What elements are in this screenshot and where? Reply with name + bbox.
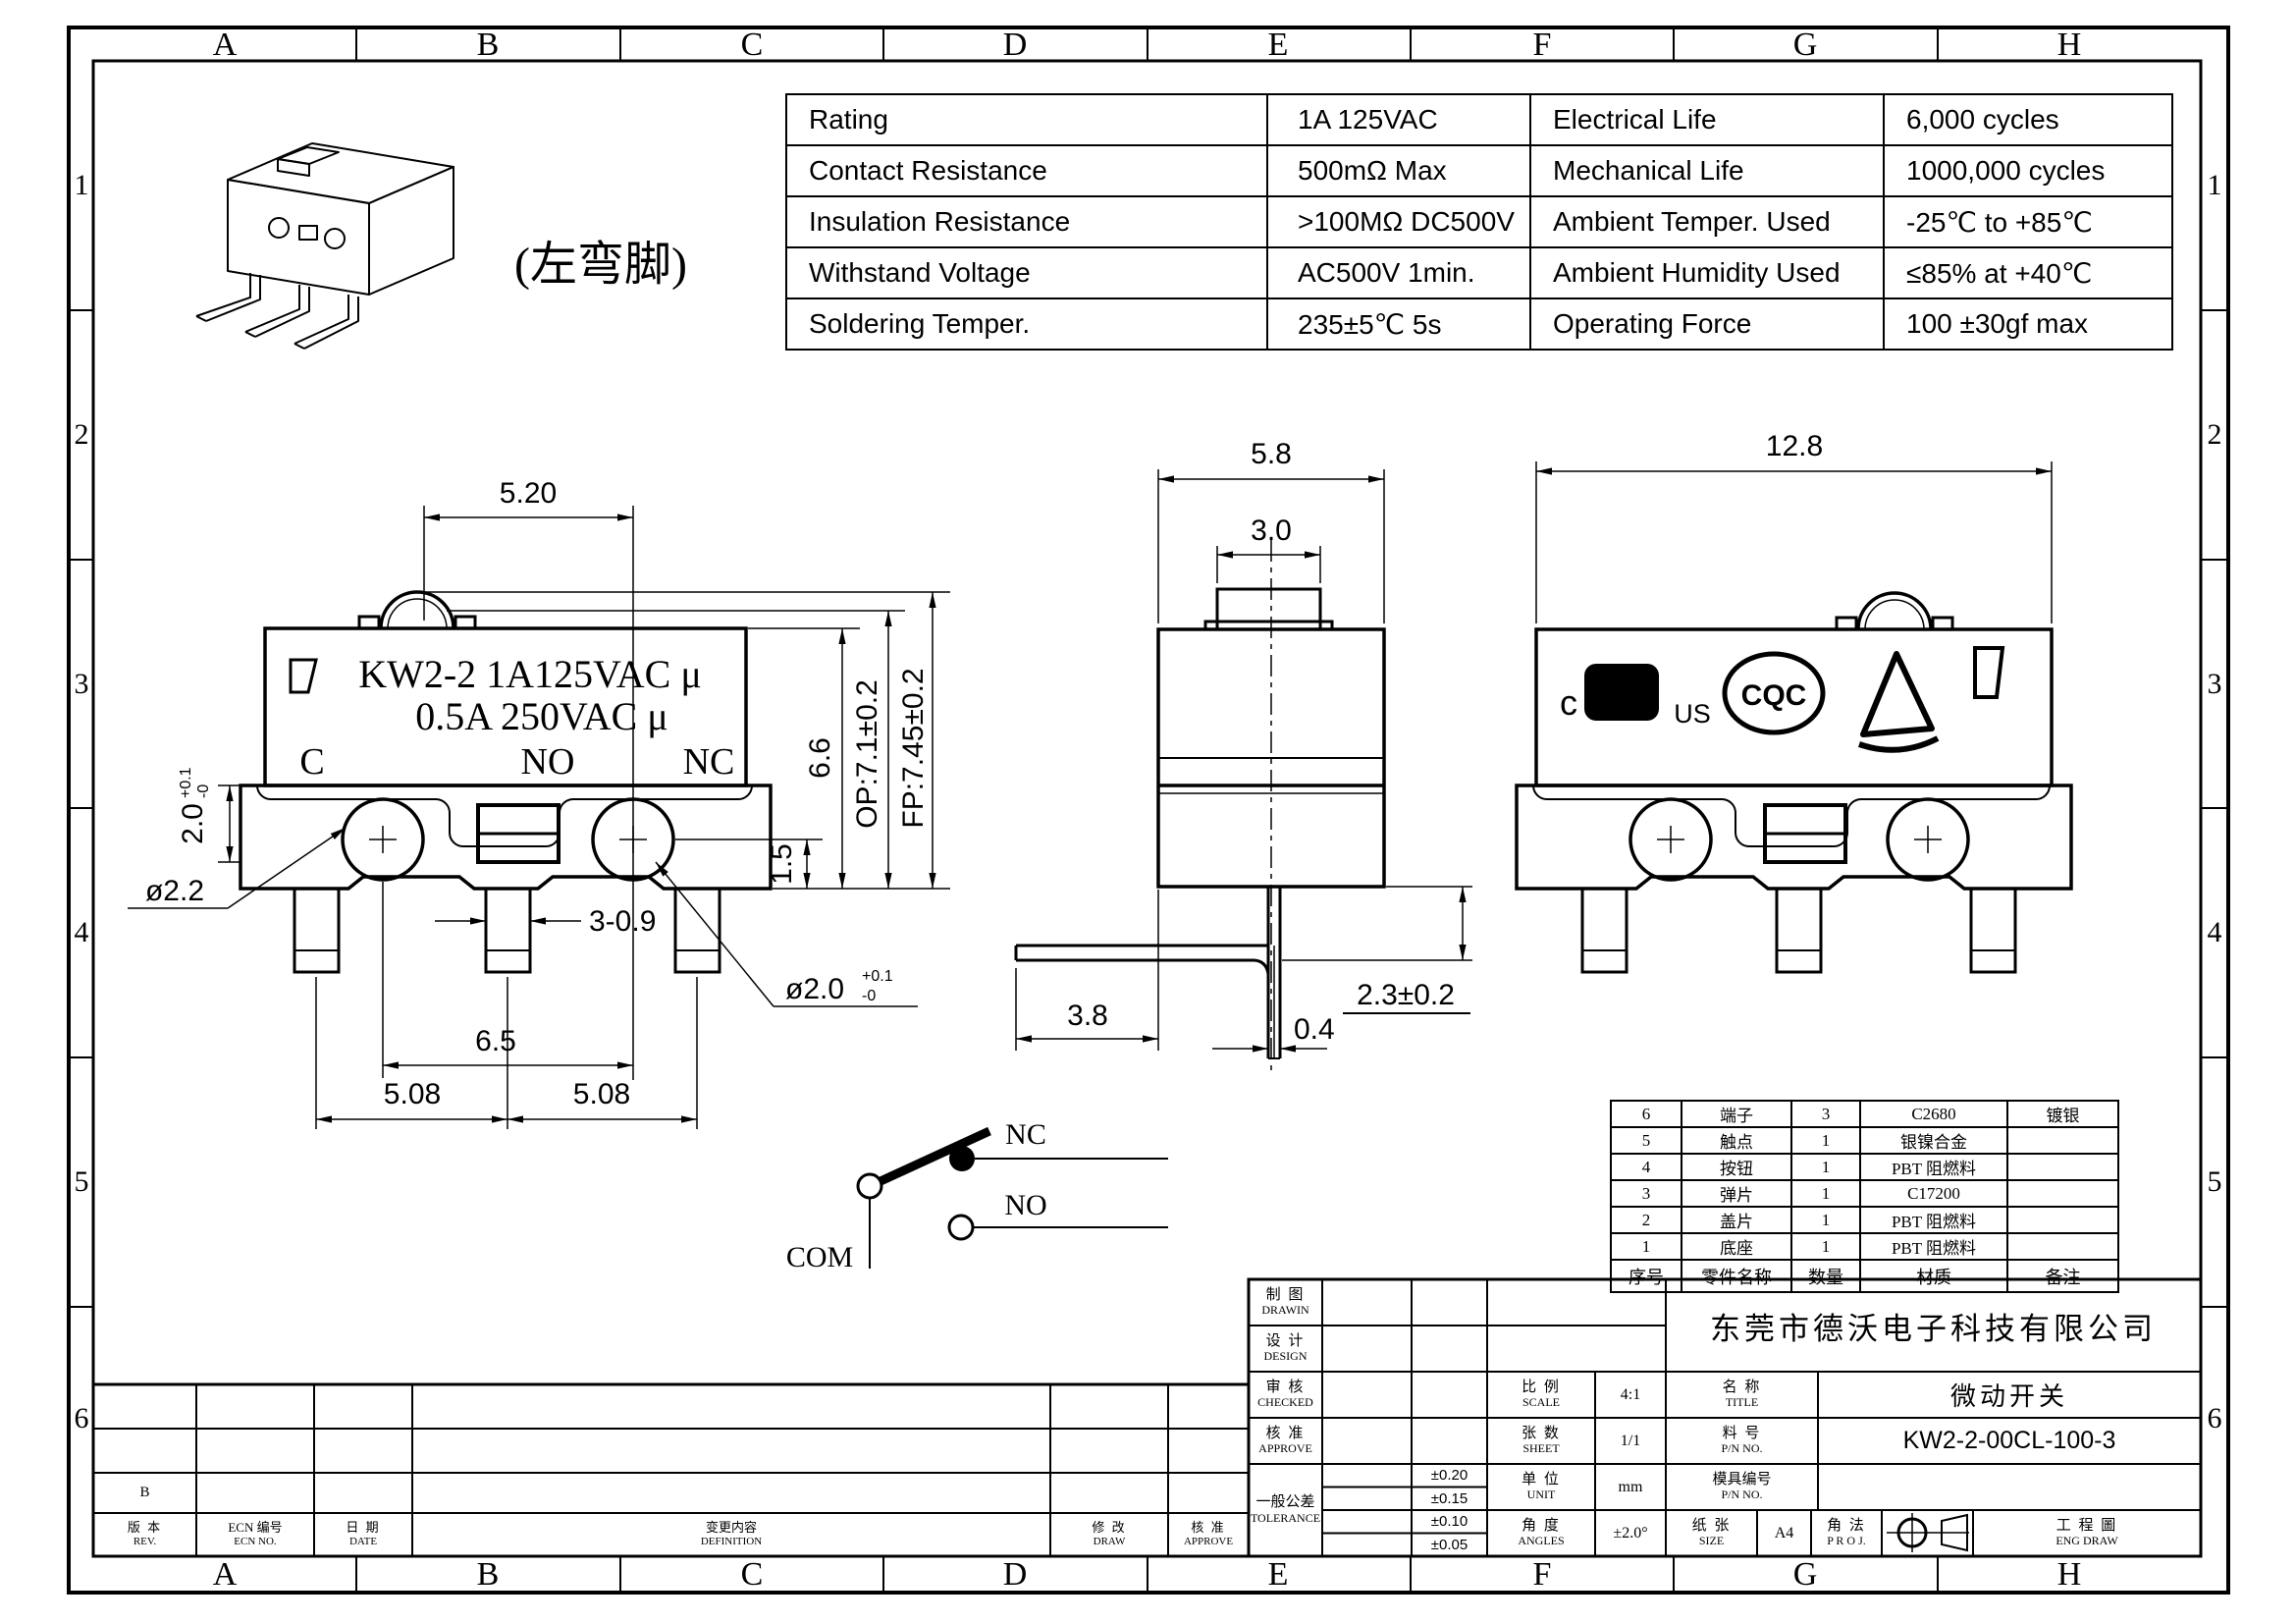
angles-value: ±2.0°	[1595, 1510, 1666, 1556]
spec-label: Insulation Resistance	[786, 196, 1267, 247]
titleblock-checked-label: 审 核CHECKED	[1249, 1372, 1322, 1418]
bom-row: 4 按钮 1 PBT 阻燃料	[1611, 1154, 2118, 1180]
revision-header-ecn: ECN 编号ECN NO.	[196, 1513, 314, 1556]
cert-c-label: c	[1560, 682, 1577, 723]
title-value: 微动开关	[1818, 1372, 2201, 1418]
bom-no: 1	[1611, 1233, 1682, 1260]
bom-note	[2007, 1233, 2118, 1260]
dim-dia2.0-tol-upper: +0.1	[862, 968, 893, 985]
bom-note: 镀银	[2007, 1101, 2118, 1127]
titleblock-tolerance-label: 一般公差TOLERANCE	[1249, 1464, 1322, 1556]
spec-label: Ambient Temper. Used	[1530, 196, 1884, 247]
bom-part-name: 端子	[1682, 1101, 1791, 1127]
bom-note	[2007, 1207, 2118, 1233]
isometric-view	[196, 143, 454, 349]
bom-no: 3	[1611, 1180, 1682, 1207]
circuit-no-label: NO	[1004, 1189, 1046, 1221]
cqc-mark-text: CQC	[1741, 679, 1807, 712]
side-view-dimensions: 3.0 5.8 3.8 0.4 2.3±0.2	[1016, 438, 1472, 1051]
dim-12.8: 12.8	[1766, 430, 1823, 462]
dim-5.8: 5.8	[1251, 438, 1292, 470]
bom-row: 2 盖片 1 PBT 阻燃料	[1611, 1207, 2118, 1233]
cert-us-label: US	[1674, 699, 1711, 729]
bom-table: 6 端子 3 C2680 镀银 5 触点 1 银镍合金 4 按钮 1 PBT 阻…	[1610, 1100, 2119, 1293]
spec-label: Mechanical Life	[1530, 145, 1884, 196]
spec-label: Contact Resistance	[786, 145, 1267, 196]
circuit-nc-label: NC	[1005, 1118, 1046, 1151]
bom-material: 银镍合金	[1860, 1127, 2007, 1154]
bom-qty: 1	[1791, 1127, 1860, 1154]
eng-draw-label: 工 程 圖ENG DRAW	[1973, 1510, 2201, 1556]
mold-number-value	[1818, 1464, 2201, 1510]
revision-header-date: 日 期DATE	[314, 1513, 412, 1556]
titleblock-drawing-label: 制 图DRAWIN	[1249, 1279, 1322, 1325]
bom-material: PBT 阻燃料	[1860, 1154, 2007, 1180]
spec-row: Insulation Resistance >100MΩ DC500V Ambi…	[786, 196, 2172, 247]
tolerance-value: ±0.10	[1412, 1510, 1487, 1533]
spec-value: >100MΩ DC500V	[1267, 196, 1530, 247]
projection-symbol-icon	[1887, 1513, 1969, 1552]
bom-part-name: 底座	[1682, 1233, 1791, 1260]
part-number-label: 料 号P/N NO.	[1666, 1418, 1818, 1464]
bom-row: 6 端子 3 C2680 镀银	[1611, 1101, 2118, 1127]
right-view: c UL US CQC	[1517, 593, 2071, 972]
terminal-label-c: C	[299, 741, 324, 783]
title-label: 名 称TITLE	[1666, 1372, 1818, 1418]
spec-value: 100 ±30gf max	[1884, 298, 2172, 350]
spec-value: 235±5℃ 5s	[1267, 298, 1530, 350]
scale-label: 比 例SCALE	[1487, 1372, 1595, 1418]
dim-2.0-tol-lower: -0	[195, 784, 212, 798]
spec-value: 6,000 cycles	[1884, 94, 2172, 145]
bom-qty: 1	[1791, 1233, 1860, 1260]
dim-fp: FP:7.45±0.2	[897, 668, 930, 828]
titleblock-approve-label: 核 准APPROVE	[1249, 1418, 1322, 1464]
dim-1.5: 1.5	[766, 843, 798, 885]
front-view: KW2-2 1A125VAC μ 0.5A 250VAC μ C NO NC	[240, 592, 771, 972]
dim-5.08-left: 5.08	[384, 1078, 441, 1110]
spec-row: Soldering Temper. 235±5℃ 5s Operating Fo…	[786, 298, 2172, 350]
trapezoid-mark-icon	[1975, 648, 2002, 697]
spec-label: Withstand Voltage	[786, 247, 1267, 298]
spec-value: -25℃ to +85℃	[1884, 196, 2172, 247]
part-number-value: KW2-2-00CL-100-3	[1818, 1418, 2201, 1464]
dim-6.5: 6.5	[475, 1025, 516, 1057]
drawing-sheet: A B C D E F G H A B C D E F G H 1 2 3 4 …	[0, 0, 2296, 1623]
revision-header-definition: 变更内容DEFINITION	[412, 1513, 1050, 1556]
spec-label: Soldering Temper.	[786, 298, 1267, 350]
tolerance-value: ±0.15	[1412, 1487, 1487, 1510]
triangle-mark-icon	[1859, 654, 1938, 750]
bom-part-name: 盖片	[1682, 1207, 1791, 1233]
bom-qty: 1	[1791, 1207, 1860, 1233]
dim-dia2.2: ø2.2	[145, 875, 204, 907]
spec-label: Ambient Humidity Used	[1530, 247, 1884, 298]
dim-op: OP:7.1±0.2	[851, 679, 883, 829]
bom-material: C17200	[1860, 1180, 2007, 1207]
bom-qty: 1	[1791, 1180, 1860, 1207]
bom-material: C2680	[1860, 1101, 2007, 1127]
sheet-label: 张 数SHEET	[1487, 1418, 1595, 1464]
iso-label: (左弯脚)	[514, 239, 687, 291]
bom-note	[2007, 1154, 2118, 1180]
projection-label: 角 法P R O J.	[1811, 1510, 1882, 1556]
bom-part-name: 触点	[1682, 1127, 1791, 1154]
bom-qty: 1	[1791, 1154, 1860, 1180]
revision-header-rev: 版 本REV.	[93, 1513, 196, 1556]
scale-value: 4:1	[1595, 1372, 1666, 1418]
dim-2.0-tol-upper: +0.1	[178, 767, 194, 798]
spec-row: Rating 1A 125VAC Electrical Life 6,000 c…	[786, 94, 2172, 145]
dim-5.20: 5.20	[500, 477, 557, 510]
angles-label: 角 度ANGLES	[1487, 1510, 1595, 1556]
spec-value: 1000,000 cycles	[1884, 145, 2172, 196]
revision-header-draw: 修 改DRAW	[1050, 1513, 1168, 1556]
dim-3.0: 3.0	[1251, 514, 1292, 547]
revision-header-approve: 核 准APPROVE	[1168, 1513, 1249, 1556]
bom-part-name: 弹片	[1682, 1180, 1791, 1207]
bom-no: 6	[1611, 1101, 1682, 1127]
bom-row: 1 底座 1 PBT 阻燃料	[1611, 1233, 2118, 1260]
bom-note	[2007, 1127, 2118, 1154]
dim-dia2.0-tol-lower: -0	[862, 988, 876, 1004]
sheet-value: 1/1	[1595, 1418, 1666, 1464]
revision-mark: B	[93, 1473, 196, 1513]
dim-3.8: 3.8	[1067, 1000, 1108, 1032]
tolerance-value: ±0.05	[1412, 1533, 1487, 1556]
bom-part-name: 按钮	[1682, 1154, 1791, 1180]
dim-6.6: 6.6	[804, 737, 836, 779]
titleblock-design-label: 设 计DESIGN	[1249, 1325, 1322, 1372]
front-marking-line1: KW2-2 1A125VAC μ	[358, 652, 702, 696]
bom-note	[2007, 1180, 2118, 1207]
bom-qty: 3	[1791, 1101, 1860, 1127]
circuit-com-label: COM	[786, 1241, 853, 1273]
unit-label: 单 位UNIT	[1487, 1464, 1595, 1510]
spec-value: 500mΩ Max	[1267, 145, 1530, 196]
spec-value: ≤85% at +40℃	[1884, 247, 2172, 298]
front-marking-line2: 0.5A 250VAC μ	[415, 694, 667, 738]
bom-material: PBT 阻燃料	[1860, 1207, 2007, 1233]
bom-row: 5 触点 1 银镍合金	[1611, 1127, 2118, 1154]
company-name: 东莞市德沃电子科技有限公司	[1666, 1279, 2201, 1372]
side-view	[1016, 540, 1384, 1070]
ul-mark-text: UL	[1601, 680, 1643, 716]
circuit-diagram: NC NO COM	[786, 1118, 1168, 1273]
spec-label: Electrical Life	[1530, 94, 1884, 145]
dim-5.08-right: 5.08	[573, 1078, 630, 1110]
paper-size-label: 纸 张SIZE	[1666, 1510, 1757, 1556]
terminal-label-nc: NC	[683, 741, 735, 783]
spec-label: Rating	[786, 94, 1267, 145]
spec-row: Withstand Voltage AC500V 1min. Ambient H…	[786, 247, 2172, 298]
dim-0.4: 0.4	[1294, 1013, 1335, 1046]
dim-3-0.9: 3-0.9	[589, 905, 656, 938]
spec-value: 1A 125VAC	[1267, 94, 1530, 145]
paper-size-value: A4	[1757, 1510, 1811, 1556]
tolerance-value: ±0.20	[1412, 1464, 1487, 1487]
bom-no: 5	[1611, 1127, 1682, 1154]
spec-value: AC500V 1min.	[1267, 247, 1530, 298]
bom-no: 4	[1611, 1154, 1682, 1180]
bom-no: 2	[1611, 1207, 1682, 1233]
dim-2.0: 2.0	[177, 803, 209, 844]
bom-material: PBT 阻燃料	[1860, 1233, 2007, 1260]
spec-label: Operating Force	[1530, 298, 1884, 350]
bom-row: 3 弹片 1 C17200	[1611, 1180, 2118, 1207]
terminal-label-no: NO	[521, 741, 575, 783]
mold-number-label: 模具编号P/N NO.	[1666, 1464, 1818, 1510]
dim-dia2.0: ø2.0	[785, 973, 844, 1005]
dim-2.3: 2.3±0.2	[1357, 979, 1455, 1011]
spec-table: Rating 1A 125VAC Electrical Life 6,000 c…	[785, 93, 2173, 351]
unit-value: mm	[1595, 1464, 1666, 1510]
spec-row: Contact Resistance 500mΩ Max Mechanical …	[786, 145, 2172, 196]
right-view-dimensions: 12.8	[1536, 430, 2052, 623]
